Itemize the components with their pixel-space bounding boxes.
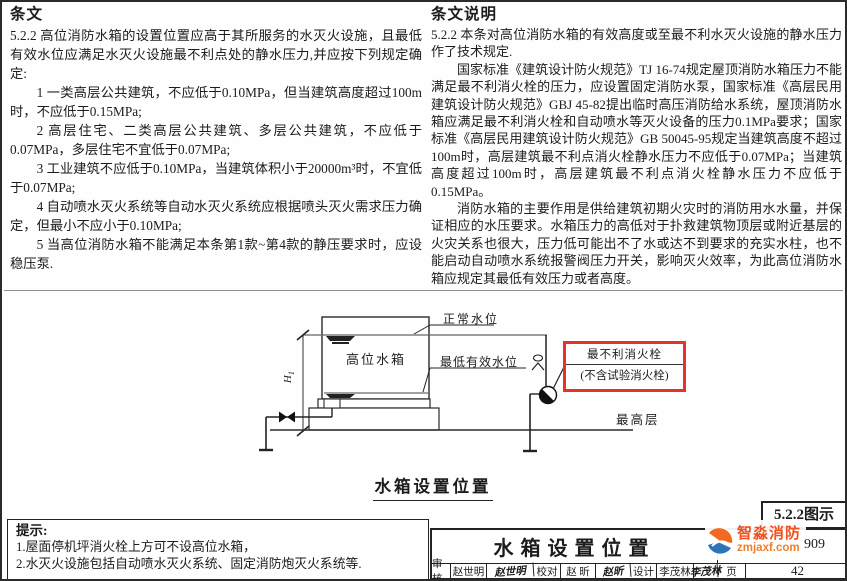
figure-caption: 水箱设置位置 xyxy=(373,473,493,501)
designer-label: 设计 xyxy=(631,564,657,578)
explanation-paragraph: 消防水箱的主要作用是供给建筑初期火灾时的消防用水水量，并保证相应的水压要求。水箱… xyxy=(431,200,842,287)
page-label: 页 xyxy=(718,564,746,578)
gate-valve-icon xyxy=(279,412,295,423)
provisions-header: 条文 xyxy=(10,4,422,25)
hydrant-icon xyxy=(540,387,557,404)
designer-signature: 李茂林 xyxy=(694,563,719,579)
outlet-pipe xyxy=(259,408,332,450)
tank-base xyxy=(309,399,439,430)
dim-base: H xyxy=(282,375,294,383)
title-block-title: 水箱设置位置 xyxy=(432,530,718,563)
reviewer-label: 审核 xyxy=(432,564,451,578)
page-number: 42 xyxy=(746,564,847,578)
notes-box: 提示: 1.屋面停机坪消火栓上方可不设高位水箱， 2.水灭火设施包括自动喷水灭火… xyxy=(7,519,429,580)
provision-item: 1 一类高层公共建筑，不应低于0.10MPa，但当建筑高度超过100m时，不应低… xyxy=(10,83,422,121)
provisions-column: 条文 5.2.2 高位消防水箱的设置位置应高于其所服务的水灭火设施，且最低有效水… xyxy=(10,4,422,273)
dim-sub: 1 xyxy=(287,371,296,375)
dimension-h1-label: H1 xyxy=(282,362,296,392)
watermark: 智淼消防 zmjaxf.com xyxy=(705,520,806,560)
zmjaxf-logo-icon xyxy=(705,525,735,555)
air-vent-icon xyxy=(532,355,544,370)
explanation-column: 条文说明 5.2.2 本条对高位消防水箱的有效高度或至最不利水灭火设施的静水压力… xyxy=(431,4,842,287)
hydrant-label-line1: 最不利消火栓 xyxy=(566,344,683,365)
title-block-bottom-row: 审核 赵世明 赵世明 校对 赵 昕 赵昕 设计 李茂林 李茂林 页 42 xyxy=(432,563,845,578)
normal-water-level-line xyxy=(303,335,547,343)
hydrant-riser-pipe xyxy=(523,335,546,451)
section-divider-line xyxy=(4,290,843,291)
proofreader-name: 赵 昕 xyxy=(561,564,596,578)
tank-label: 高位水箱 xyxy=(332,349,420,368)
lowest-water-level-line xyxy=(324,393,428,398)
normal-level-label: 正常水位 xyxy=(443,310,499,327)
atlas-document-page: 条文 5.2.2 高位消防水箱的设置位置应高于其所服务的水灭火设施，且最低有效水… xyxy=(0,0,847,581)
explanation-paragraph: 5.2.2 本条对高位消防水箱的有效高度或至最不利水灭火设施的静水压力作了技术规… xyxy=(431,26,842,61)
proofreader-label: 校对 xyxy=(534,564,561,578)
watermark-text: 智淼消防 zmjaxf.com xyxy=(735,526,801,554)
reviewer-signature: 赵世明 xyxy=(487,562,535,579)
lowest-level-label: 最低有效水位 xyxy=(440,353,518,370)
explanation-header: 条文说明 xyxy=(431,4,842,25)
hydrant-label-line2: (不含试验消火栓) xyxy=(566,365,683,383)
watermark-brand: 智淼消防 xyxy=(737,526,801,542)
explanation-paragraph: 国家标准《建筑设计防火规范》TJ 16-74规定屋顶消防水箱压力不能满足最不利消… xyxy=(431,61,842,200)
notes-header: 提示: xyxy=(16,522,420,539)
top-floor-label: 最高层 xyxy=(616,409,660,428)
proofreader-signature: 赵昕 xyxy=(596,563,632,579)
provision-item: 2 高层住宅、二类高层公共建筑、多层公共建筑，不应低于0.07MPa，多层住宅不… xyxy=(10,121,422,159)
provision-item: 4 自动喷水灭火系统等自动水灭火系统应根据喷头灭火需求压力确定，但最小不应小于0… xyxy=(10,197,422,235)
atlas-number-visible: 909 xyxy=(804,537,825,553)
provision-item: 3 工业建筑不应低于0.10MPa，当建筑体积小于20000m³时，不宜低于0.… xyxy=(10,159,422,197)
lowest-level-leader xyxy=(423,368,526,392)
provisions-intro: 5.2.2 高位消防水箱的设置位置应高于其所服务的水灭火设施，且最低有效水位应满… xyxy=(10,26,422,83)
reviewer-name: 赵世明 xyxy=(451,564,487,578)
hydrant-highlight-box: 最不利消火栓 (不含试验消火栓) xyxy=(563,341,686,392)
watermark-site: zmjaxf.com xyxy=(737,542,801,554)
note-item: 2.水灭火设施包括自动喷水灭火系统、固定消防炮灭火系统等. xyxy=(16,556,420,573)
note-item: 1.屋面停机坪消火栓上方可不设高位水箱， xyxy=(16,539,420,556)
dimension-line-h1 xyxy=(297,330,309,436)
provision-item: 5 当高位消防水箱不能满足本条第1款~第4款的静压要求时，应设稳压泵. xyxy=(10,235,422,273)
